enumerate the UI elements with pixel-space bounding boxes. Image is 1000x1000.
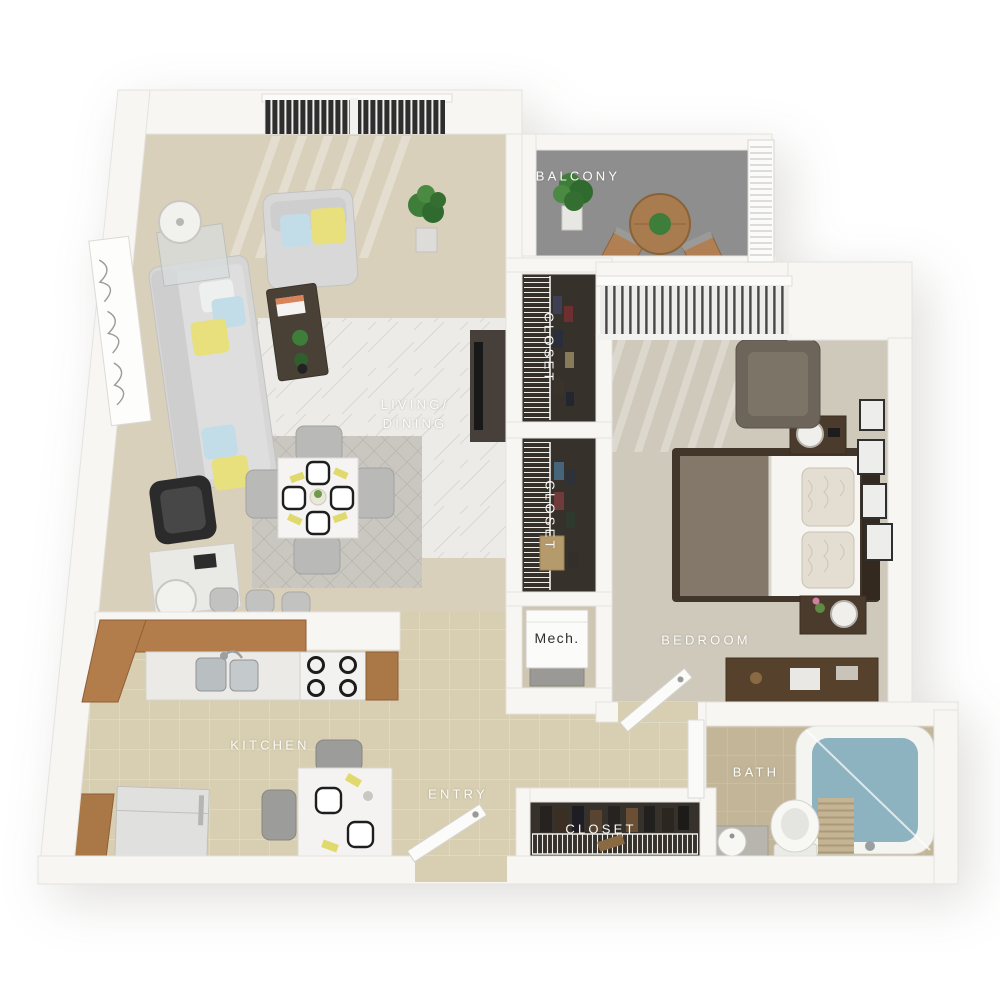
room-label-kitchen: KITCHEN (230, 738, 309, 753)
entry-doorway (415, 856, 507, 882)
sofa-pillow-yellow (190, 318, 230, 357)
nightstand-bottom (800, 596, 866, 634)
desk-laptop (790, 668, 820, 690)
tub-faucet (865, 841, 875, 851)
kitchen-lower-cabinet (366, 652, 398, 700)
wall-bedroom-top-right (788, 262, 912, 340)
room-label-living-line1: LIVING/ (381, 395, 450, 414)
stove (300, 652, 366, 700)
mech-unit (526, 610, 588, 686)
dining-chair-east (354, 468, 394, 518)
place-setting (307, 462, 329, 484)
room-label-closet-middle: CLOSET (543, 480, 558, 551)
bed-blanket (680, 456, 770, 596)
armchair-pillow-yellow (310, 207, 346, 245)
kitchen-chair (316, 740, 362, 772)
wall-closet-divider-2 (506, 592, 612, 606)
floor-plan-canvas: BALCONY CLOSET CLOSET LIVING/ DINING BED… (0, 0, 1000, 1000)
floor-plan-render (0, 0, 1000, 1000)
table-lamp-top-finial (176, 218, 184, 226)
bed-pillow (802, 468, 854, 526)
refrigerator (115, 786, 210, 863)
room-label-bedroom: BEDROOM (661, 633, 751, 648)
wall-balcony-left (522, 134, 536, 262)
toilet (771, 800, 819, 858)
room-label-living-dining: LIVING/ DINING (381, 395, 450, 433)
place-setting (348, 822, 373, 847)
sofa-pillow-yellow-2 (211, 454, 251, 491)
place-setting (331, 487, 353, 509)
place-setting (316, 788, 341, 813)
wall-bath-top (692, 702, 958, 726)
tv-screen (474, 342, 483, 430)
balcony-railing (748, 140, 774, 262)
kitchen-table (298, 768, 392, 862)
room-label-bath: BATH (733, 765, 780, 780)
dining-chair-north (296, 426, 342, 462)
armchair-pillow-blue (280, 213, 312, 247)
wall-closet-entry-left (516, 788, 530, 856)
bath-door (688, 720, 704, 798)
kitchen-chair (262, 790, 296, 840)
room-label-entry: ENTRY (428, 787, 488, 802)
wall-bath-right (934, 710, 958, 884)
bedroom-window-blinds (596, 276, 792, 340)
wall-living-right (506, 134, 522, 702)
room-label-closet-entry: CLOSET (565, 822, 636, 837)
living-window-blinds (262, 94, 452, 134)
bed (672, 448, 880, 602)
balcony-table-plant (649, 213, 671, 235)
bedside-lamp (831, 601, 857, 627)
bedroom-desk (726, 658, 878, 702)
bath-mat (818, 798, 854, 854)
room-label-living-line2: DINING (381, 414, 450, 433)
place-setting (283, 487, 305, 509)
bath-sink (718, 828, 746, 856)
reading-chair (148, 474, 218, 546)
bedroom-armchair (736, 340, 820, 428)
wall-balcony-top (522, 134, 772, 150)
room-label-closet-upper: CLOSET (542, 312, 557, 383)
living-armchair (262, 188, 358, 290)
room-label-mech: Mech. (534, 630, 579, 646)
sofa-pillow-blue-2 (201, 424, 239, 460)
wall-closet-divider-1 (506, 422, 612, 438)
room-label-balcony: BALCONY (536, 169, 621, 184)
bed-pillow (802, 532, 854, 588)
place-setting (307, 512, 329, 534)
wall-closet-entry-top (516, 788, 716, 802)
dining-centerpiece (314, 490, 322, 498)
dining-chair-south (294, 536, 340, 574)
